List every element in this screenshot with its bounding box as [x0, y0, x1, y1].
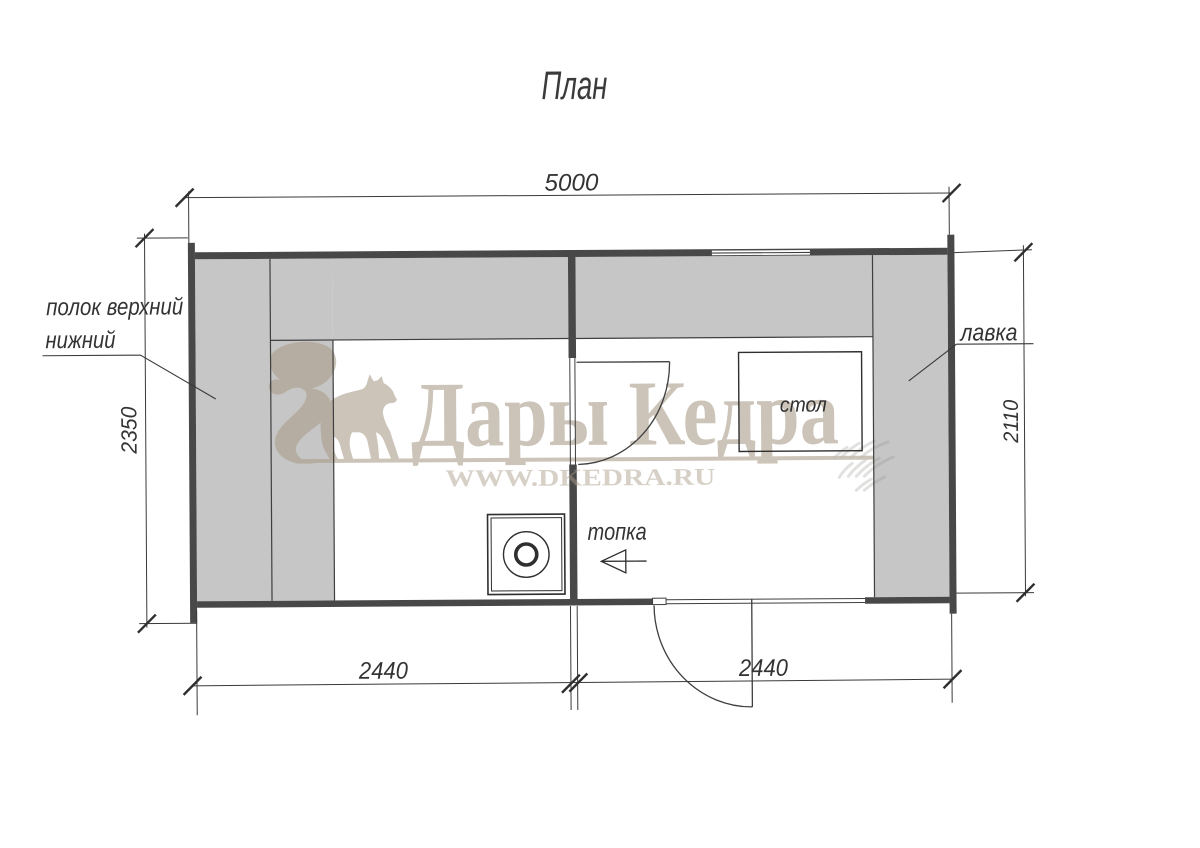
svg-text:топка: топка	[588, 519, 647, 546]
svg-text:WWW.DKEDRA.RU: WWW.DKEDRA.RU	[445, 465, 715, 493]
svg-text:2440: 2440	[358, 658, 409, 685]
svg-text:лавка: лавка	[959, 319, 1018, 346]
svg-text:стол: стол	[780, 393, 827, 416]
svg-text:5000: 5000	[544, 169, 599, 196]
svg-text:нижний: нижний	[45, 327, 115, 354]
svg-text:План: План	[541, 64, 607, 108]
svg-text:2440: 2440	[738, 655, 789, 682]
svg-text:полок верхний: полок верхний	[46, 293, 183, 321]
svg-text:2110: 2110	[1000, 399, 1023, 443]
svg-text:2350: 2350	[116, 406, 141, 455]
